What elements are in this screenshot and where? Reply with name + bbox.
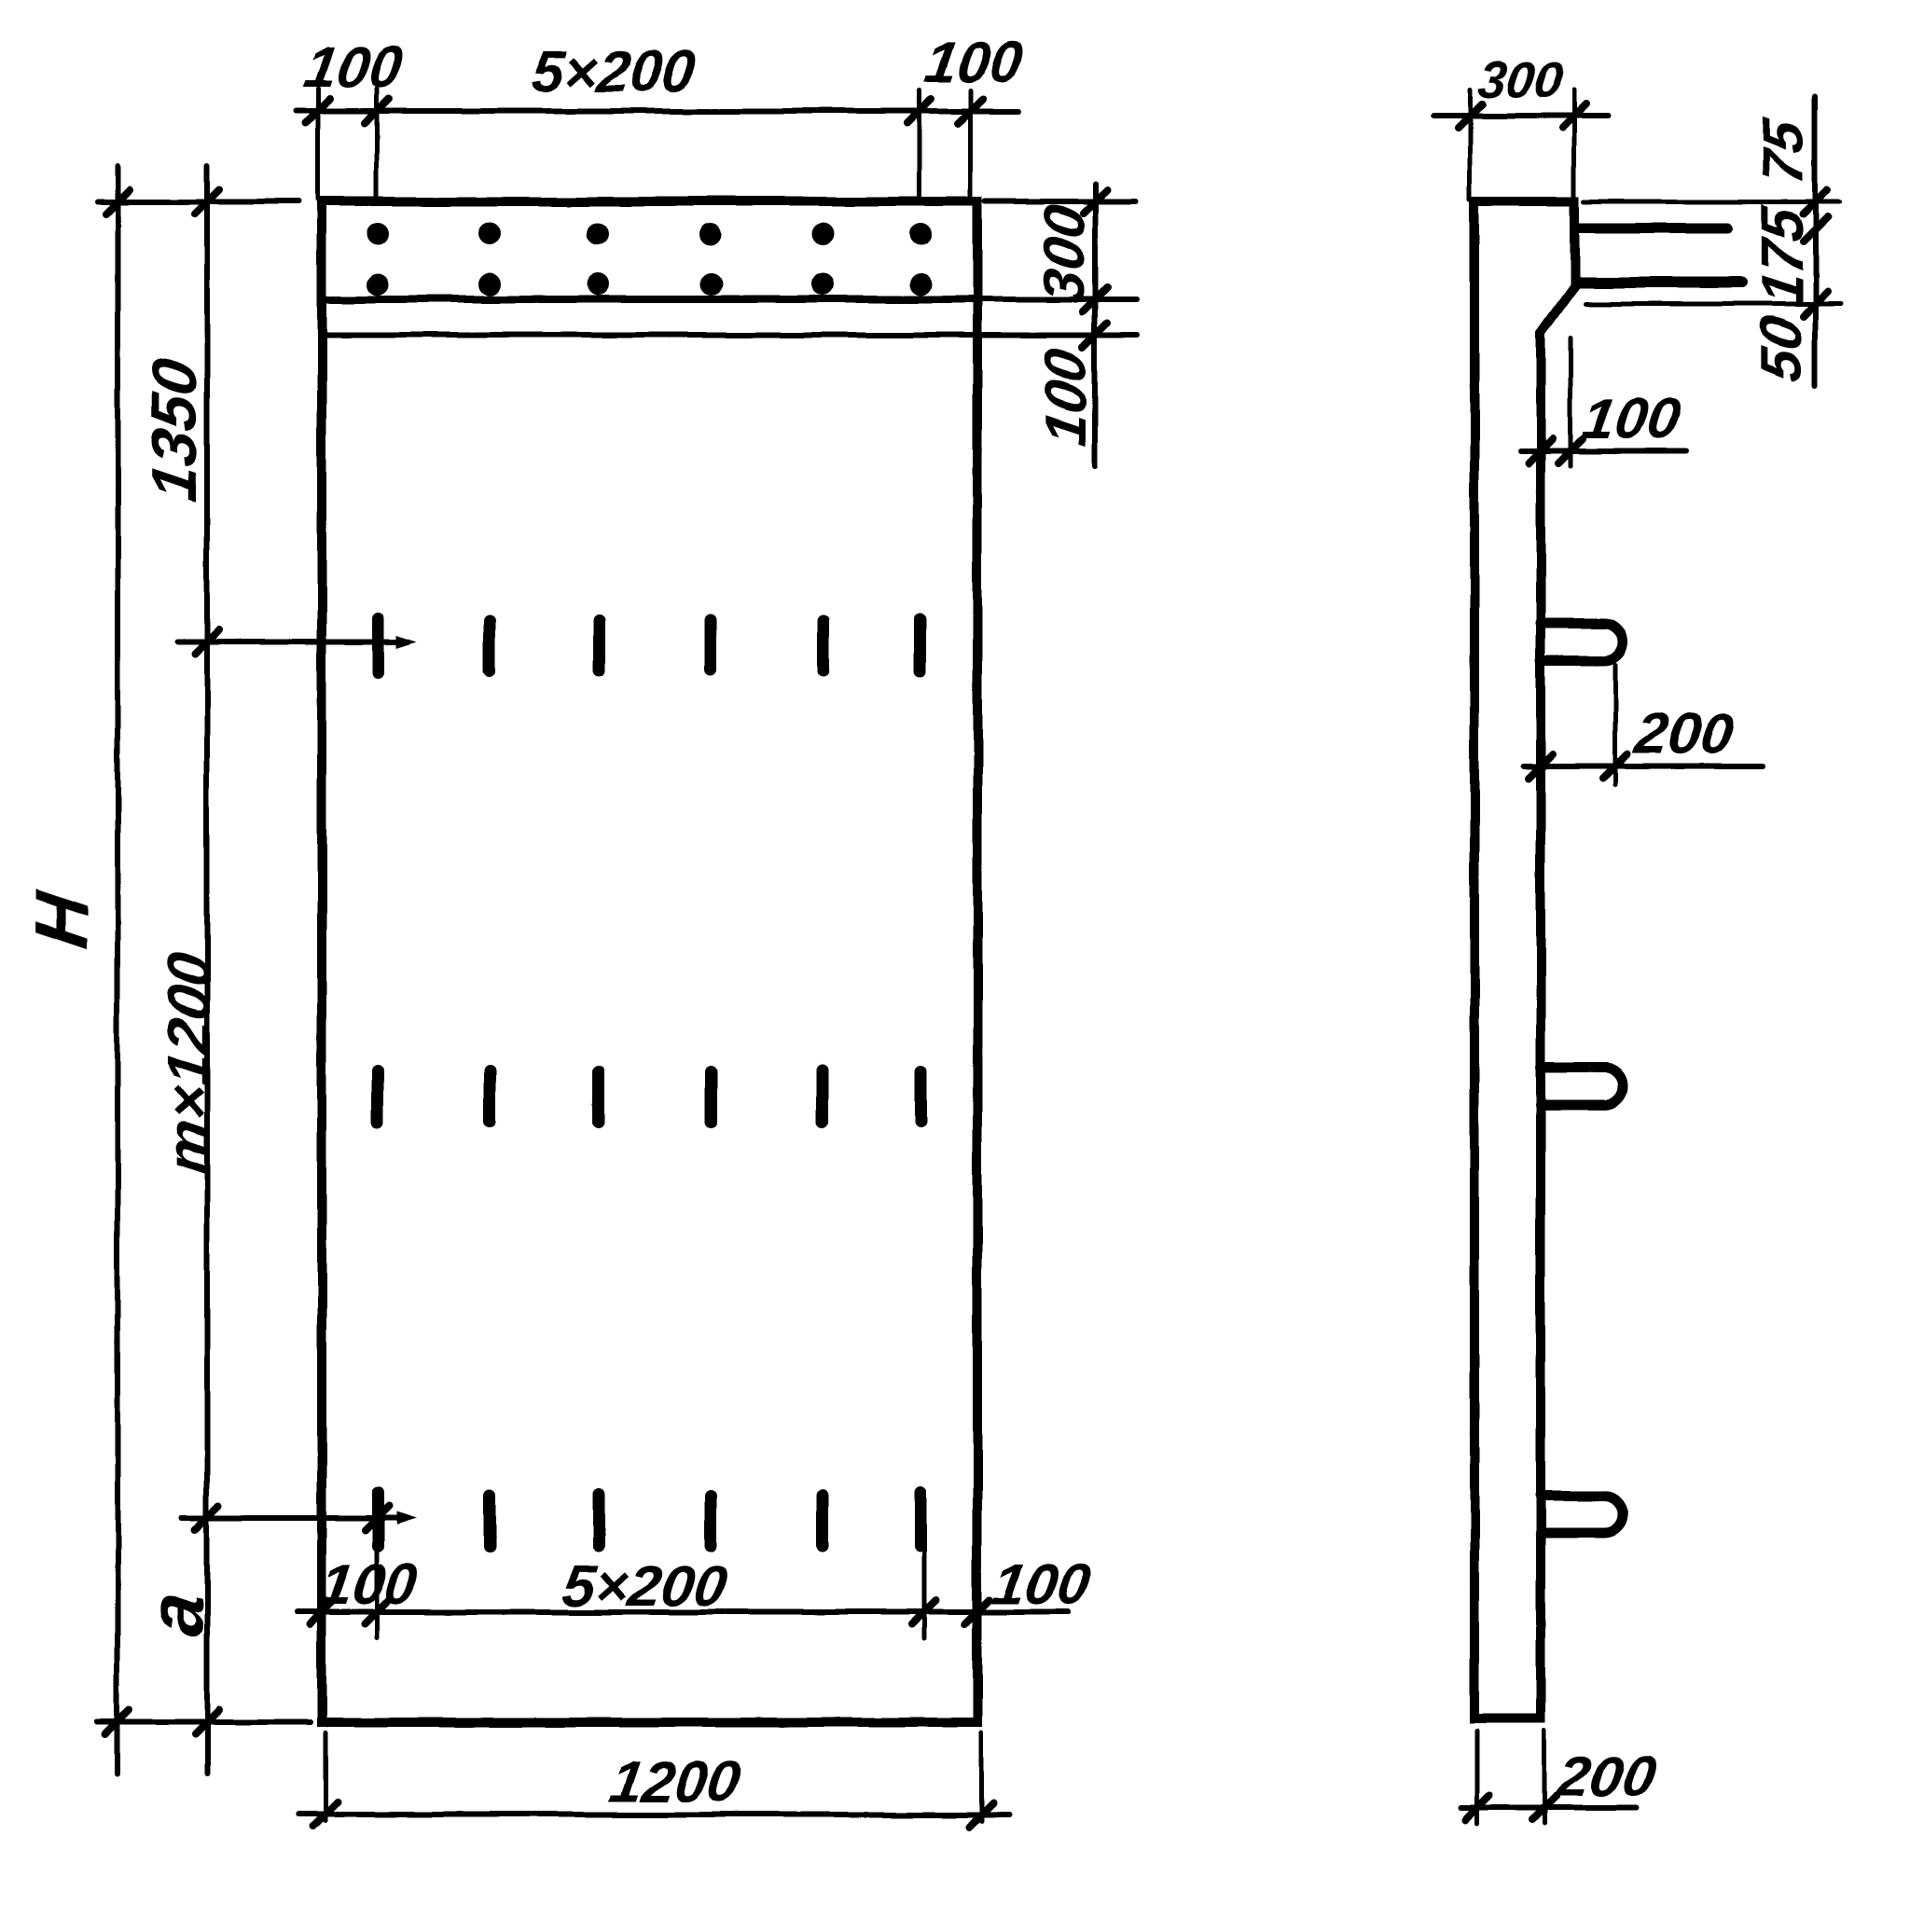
svg-text:175: 175	[1751, 202, 1815, 309]
svg-text:100: 100	[920, 31, 1026, 95]
svg-text:100: 100	[316, 1552, 422, 1617]
svg-text:200: 200	[1553, 1745, 1659, 1809]
svg-text:300: 300	[1474, 52, 1566, 108]
svg-text:1350: 1350	[139, 354, 210, 505]
svg-text:5×200: 5×200	[528, 40, 699, 104]
svg-text:100: 100	[989, 1552, 1094, 1617]
svg-text:200: 200	[1630, 702, 1737, 766]
svg-text:75: 75	[1751, 114, 1816, 188]
svg-text:100: 100	[1034, 344, 1099, 449]
svg-text:100: 100	[300, 35, 406, 100]
svg-text:300: 300	[1032, 200, 1097, 306]
svg-text:m×1200: m×1200	[155, 947, 222, 1178]
svg-text:5×200: 5×200	[559, 1554, 730, 1619]
svg-text:1200: 1200	[606, 1750, 744, 1815]
svg-text:50: 50	[1750, 311, 1814, 385]
svg-text:100: 100	[1578, 387, 1683, 451]
